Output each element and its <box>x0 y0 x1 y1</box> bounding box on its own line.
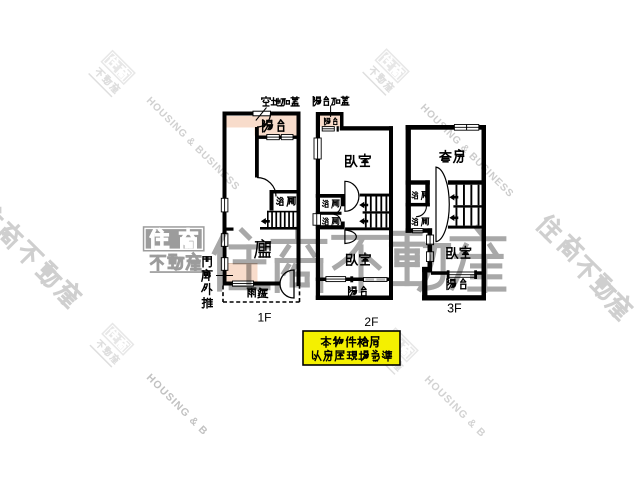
svg-text:1F: 1F <box>257 311 271 325</box>
svg-text:3F: 3F <box>447 302 462 316</box>
svg-text:2F: 2F <box>364 315 378 329</box>
